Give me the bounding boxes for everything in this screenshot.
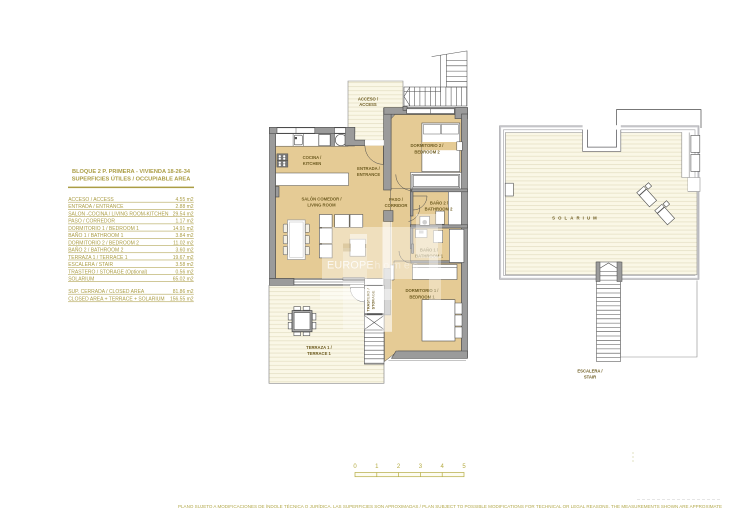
svg-text:TERRAZA 1 /: TERRAZA 1 / <box>306 345 333 350</box>
svg-text:ACCESS: ACCESS <box>359 102 377 107</box>
svg-text:DORMITORIO 2 /: DORMITORIO 2 / <box>411 143 445 148</box>
svg-text:STAIR: STAIR <box>584 375 596 380</box>
svg-text:COCINA /: COCINA / <box>303 155 323 160</box>
svg-text:KITCHEN: KITCHEN <box>303 161 322 166</box>
svg-text:PASO /: PASO / <box>389 197 404 202</box>
svg-text:2: 2 <box>397 464 401 470</box>
svg-text:SALÓN COMEDOR /: SALÓN COMEDOR / <box>301 196 342 201</box>
svg-text:4: 4 <box>441 464 445 470</box>
svg-text:EUROPE: EUROPE <box>327 260 374 272</box>
svg-text:CORRIDOR: CORRIDOR <box>385 203 408 208</box>
svg-text:SOLARIUM: SOLARIUM <box>552 216 600 221</box>
svg-text:BEDROOM 2: BEDROOM 2 <box>414 149 440 154</box>
svg-text:1: 1 <box>375 464 379 470</box>
svg-text:5: 5 <box>462 464 466 470</box>
svg-text:BAÑO 2 /: BAÑO 2 / <box>430 201 449 206</box>
svg-text:ENTRANCE: ENTRANCE <box>357 172 380 177</box>
svg-text:TERRACE 1: TERRACE 1 <box>307 351 331 356</box>
svg-text:homes: homes <box>375 260 422 272</box>
svg-text:ENTRADA /: ENTRADA / <box>357 166 380 171</box>
svg-text:PLANO SUJETO A MODIFICACIONES: PLANO SUJETO A MODIFICACIONES DE ÍNDOLE … <box>178 503 722 509</box>
svg-text:SUPERFICIES ÚTILES / OCCUPIABL: SUPERFICIES ÚTILES / OCCUPIABLE AREA <box>72 176 191 183</box>
svg-text:BATHROOM 2: BATHROOM 2 <box>425 207 454 212</box>
svg-text:ESCALERA /: ESCALERA / <box>577 369 603 374</box>
svg-text:BLOQUE 2 P. PRIMERA - VIVIEND: BLOQUE 2 P. PRIMERA - VIVIENDA 18-26-34 <box>72 169 191 175</box>
svg-text:ACCESO /: ACCESO / <box>358 96 379 101</box>
svg-text:LIVING ROOM: LIVING ROOM <box>307 202 336 207</box>
svg-text:0: 0 <box>353 464 357 470</box>
svg-text:3: 3 <box>419 464 423 470</box>
